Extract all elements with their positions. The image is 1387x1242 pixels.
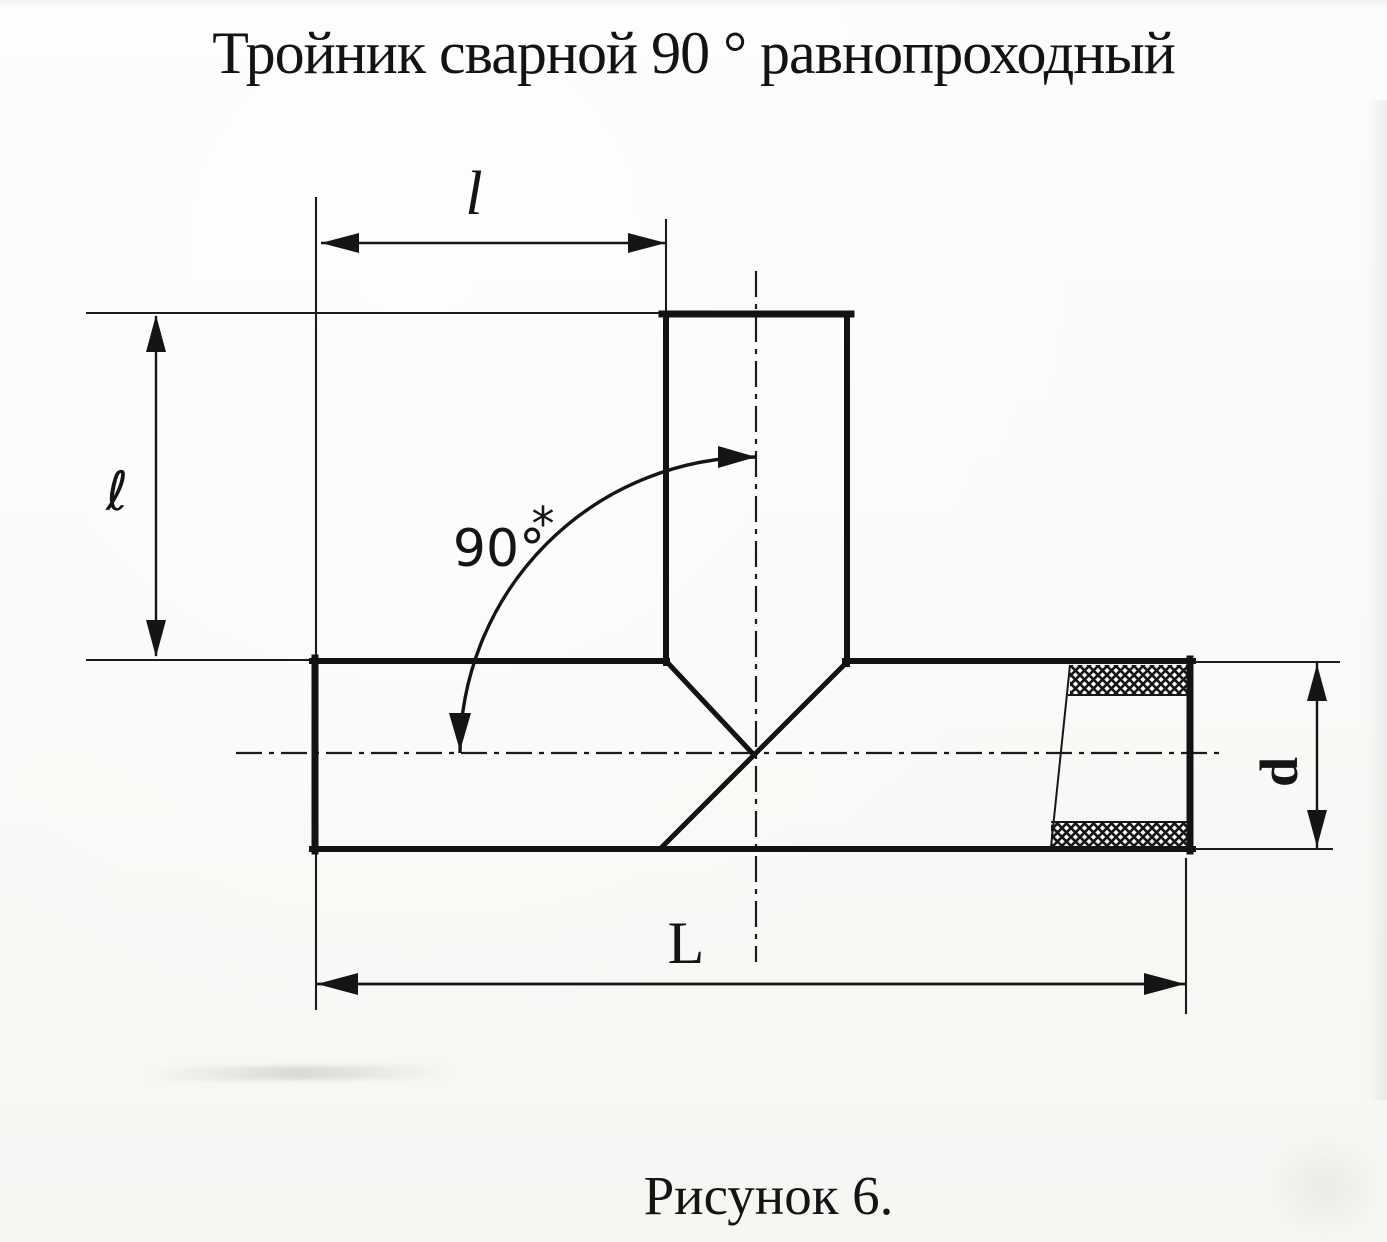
dimension-overall-length: L bbox=[317, 910, 1185, 995]
arrowhead-d-bottom bbox=[1307, 810, 1327, 847]
arrowhead-l-right bbox=[628, 233, 666, 253]
centerlines bbox=[236, 271, 1224, 962]
arrowhead-script-l-top bbox=[146, 315, 166, 352]
figure-caption: Рисунок 6. bbox=[0, 1164, 1387, 1227]
weld-line-left bbox=[666, 661, 754, 755]
dimension-diameter: d bbox=[1249, 663, 1327, 848]
dimension-top-length: l bbox=[321, 160, 666, 253]
extension-lines bbox=[86, 197, 1340, 1014]
label-angle-note: * bbox=[532, 497, 555, 551]
label-top-length: l bbox=[465, 160, 482, 228]
hatch-band-top bbox=[1070, 665, 1189, 695]
arrowhead-d-top bbox=[1307, 664, 1327, 701]
tee-fitting-diagram: l ℓ 90° * d L bbox=[0, 0, 1387, 1242]
pipe-wall-section-hatch bbox=[1051, 665, 1189, 848]
arrowhead-script-l-bottom bbox=[146, 620, 166, 657]
arrowhead-L-right bbox=[1144, 973, 1185, 995]
arrowhead-l-left bbox=[321, 233, 359, 253]
section-break-line bbox=[1051, 665, 1070, 847]
hatch-band-bottom bbox=[1051, 822, 1189, 848]
label-side-length: ℓ bbox=[105, 460, 128, 523]
arrowhead-arc-bottom bbox=[449, 713, 471, 751]
label-overall-length: L bbox=[668, 910, 705, 976]
arrowhead-L-left bbox=[317, 973, 358, 995]
dimension-side-length: ℓ bbox=[105, 315, 166, 657]
label-diameter: d bbox=[1249, 757, 1309, 787]
scanned-drawing-page: Тройник сварной 90 ° равнопроходный bbox=[0, 0, 1387, 1242]
weld-joint-lines bbox=[660, 661, 847, 849]
weld-line-right bbox=[660, 662, 847, 849]
arrowhead-arc-top bbox=[718, 446, 756, 468]
